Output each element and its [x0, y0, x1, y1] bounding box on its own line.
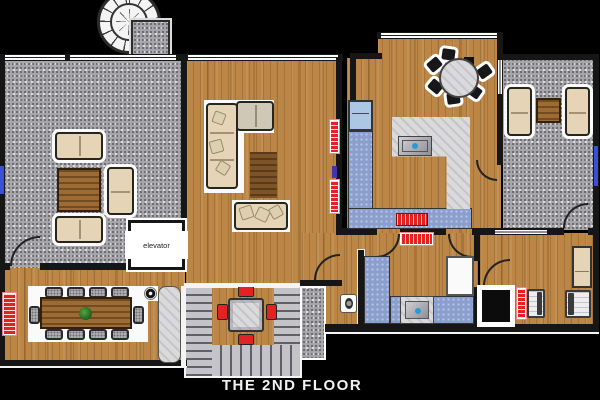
radiator-hallway — [400, 233, 433, 245]
stair-flight-bottom — [212, 345, 300, 376]
window-sitting-bottom — [495, 230, 547, 234]
radiator-living-1 — [330, 120, 339, 153]
dining-chair — [67, 329, 85, 340]
wall-fixture — [332, 166, 337, 178]
shower-door — [446, 256, 474, 296]
dining-chair-head-left — [29, 306, 40, 324]
faucet-icon — [415, 308, 421, 314]
table-plant — [79, 307, 92, 320]
faucet-icon — [412, 143, 418, 149]
window-family-top-2 — [70, 55, 176, 60]
wall-kitchen-right — [497, 32, 503, 165]
family-coffee-table — [57, 168, 101, 212]
bath-counter-left — [364, 256, 390, 324]
sitting-side-table — [536, 98, 561, 123]
wall-living-bottom — [300, 280, 342, 286]
family-sofa-top — [55, 132, 103, 160]
bed-1 — [527, 289, 545, 318]
elevator-door-right — [182, 231, 188, 259]
kitchen-sink — [398, 136, 432, 156]
elevator-label: elevator — [131, 223, 182, 267]
window-family-top-1 — [5, 55, 65, 60]
trim-dining-bottom — [0, 366, 187, 368]
stair-side-landing — [302, 288, 324, 358]
window-kitchen-right — [498, 60, 502, 94]
round-dining-table — [439, 58, 479, 98]
family-sofa-bottom — [55, 216, 103, 243]
speaker — [144, 287, 157, 300]
bath-sink-unit — [400, 296, 434, 324]
radiator-living-2 — [330, 180, 339, 213]
stove — [396, 213, 428, 226]
window-family-left — [0, 166, 4, 194]
wall-sitting-right — [593, 54, 599, 332]
red-chair-top — [238, 286, 254, 297]
fridge — [348, 100, 373, 131]
floor-plan: elevator — [0, 0, 600, 400]
elevator: elevator — [128, 220, 185, 270]
trim-stairs-top — [184, 283, 302, 287]
dining-chair-head-right — [133, 306, 144, 324]
closet — [482, 290, 510, 322]
cafe-table — [228, 298, 264, 332]
trim-dining-stairs — [181, 286, 186, 366]
red-chair-left — [217, 304, 228, 320]
family-sofa-right — [107, 167, 134, 215]
wall-sitting-top — [500, 54, 598, 60]
window-sitting-right — [594, 146, 598, 186]
living-sofa-back — [236, 101, 274, 131]
kitchen-counter-left — [348, 131, 373, 210]
dining-sideboard — [158, 286, 181, 363]
wall-kitchen-bottom-1 — [336, 228, 377, 235]
wall-sitting-bottom-2 — [588, 228, 598, 235]
wall-bath-bedroom-bottom — [325, 324, 599, 332]
bedroom-desk — [572, 246, 592, 288]
bed-2 — [565, 290, 591, 318]
radiator-bedroom — [517, 288, 526, 319]
wall-family-right — [181, 54, 187, 224]
stair-platform — [131, 20, 170, 56]
window-kitchen-top — [381, 33, 499, 38]
dining-chair — [89, 329, 107, 340]
living-rug — [250, 152, 277, 198]
wall-family-left — [0, 54, 5, 270]
stair-flight-left — [186, 288, 212, 376]
floor-title: THE 2ND FLOOR — [0, 377, 584, 397]
dining-chair — [45, 329, 63, 340]
radiator-dining — [3, 293, 16, 335]
wall-bedroom-left-1 — [474, 233, 480, 261]
sitting-sofa-right — [565, 87, 590, 136]
red-chair-right — [266, 304, 277, 320]
trim-bottom-right — [325, 332, 599, 334]
wall-family-bottom-2 — [40, 263, 135, 270]
toilet — [340, 294, 357, 313]
stair-flight-right — [274, 288, 300, 345]
window-living-top — [188, 55, 338, 60]
wall-kitchen-notch-v — [350, 53, 356, 100]
dining-chair — [111, 329, 129, 340]
red-chair-bottom — [238, 334, 254, 345]
sitting-sofa-left — [507, 87, 532, 136]
elevator-door-left — [125, 231, 131, 259]
